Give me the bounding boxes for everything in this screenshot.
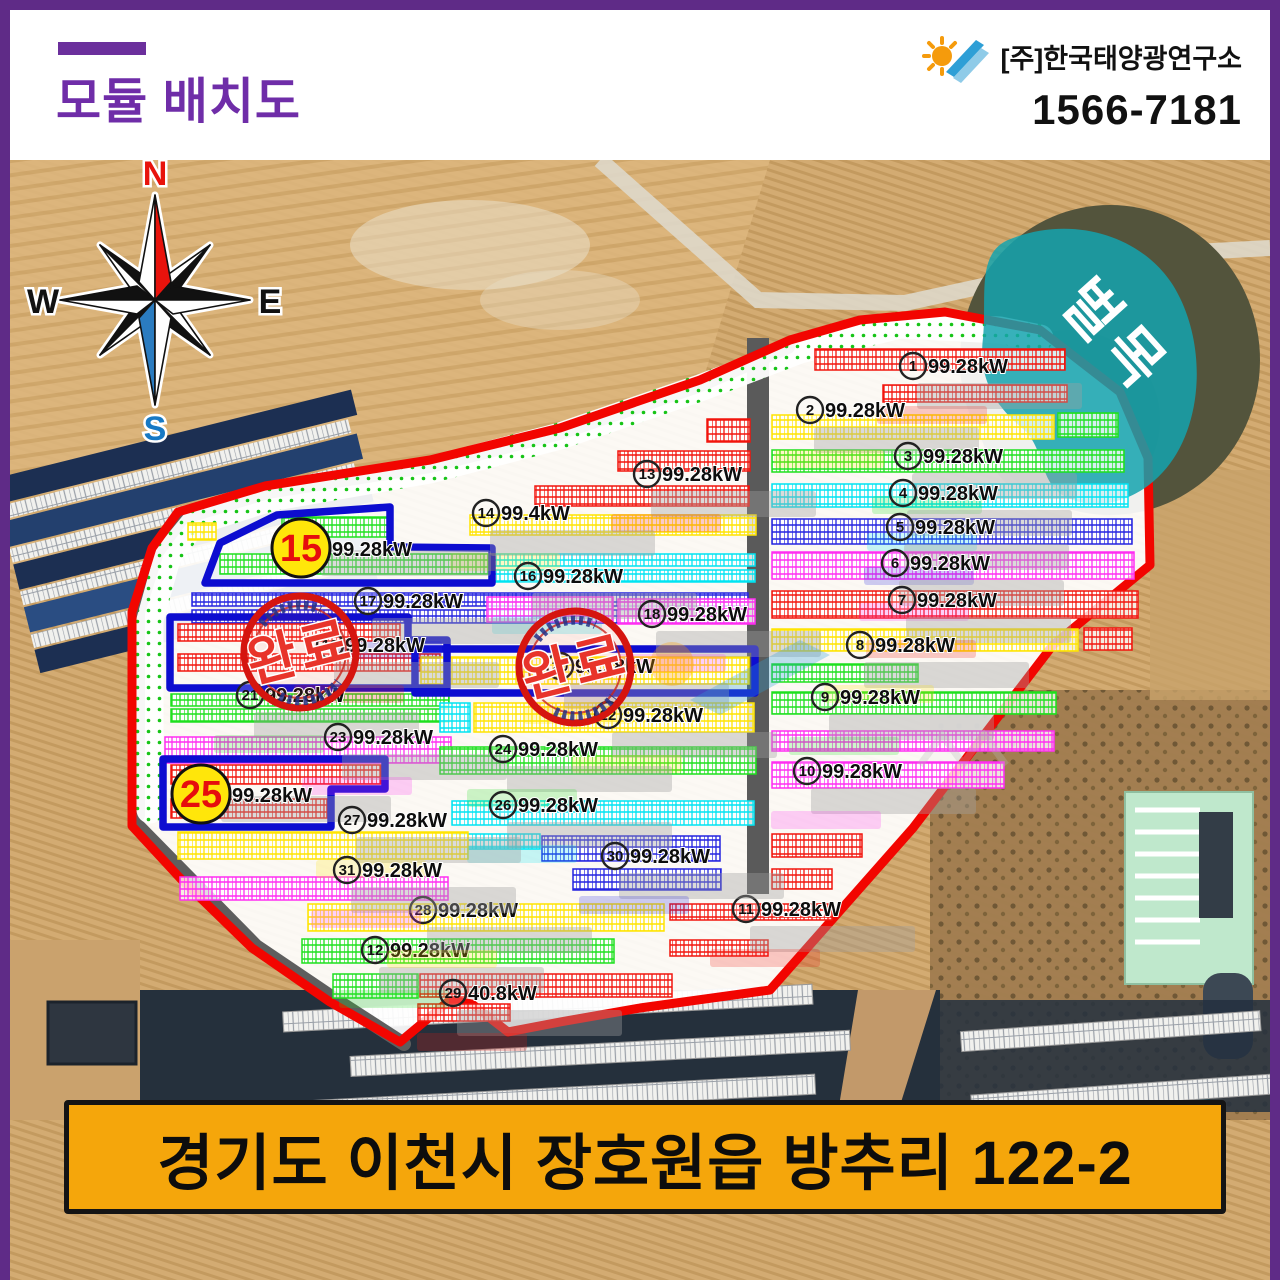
svg-text:99.28kW: 99.28kW	[928, 356, 1008, 378]
svg-text:99.28kW: 99.28kW	[918, 483, 998, 505]
svg-text:9: 9	[821, 689, 829, 706]
svg-text:99.28kW: 99.28kW	[332, 539, 412, 561]
svg-text:99.28kW: 99.28kW	[383, 591, 463, 613]
svg-text:13: 13	[639, 466, 656, 483]
svg-text:12: 12	[367, 942, 384, 959]
phone-number: 1566-7181	[920, 86, 1242, 134]
svg-text:99.28kW: 99.28kW	[822, 761, 902, 783]
svg-text:99.28kW: 99.28kW	[623, 705, 703, 727]
svg-text:99.28kW: 99.28kW	[518, 795, 598, 817]
svg-text:17: 17	[360, 593, 377, 610]
barn-building	[48, 1002, 136, 1064]
svg-text:99.28kW: 99.28kW	[875, 635, 955, 657]
svg-text:99.28kW: 99.28kW	[915, 517, 995, 539]
svg-text:3: 3	[904, 448, 912, 465]
site-address: 경기도 이천시 장호원읍 방추리 122-2	[157, 1113, 1132, 1202]
svg-text:99.28kW: 99.28kW	[367, 810, 447, 832]
svg-text:5: 5	[896, 519, 904, 536]
svg-text:99.28kW: 99.28kW	[825, 400, 905, 422]
frame-border-right	[1270, 0, 1280, 1280]
svg-text:99.28kW: 99.28kW	[362, 860, 442, 882]
svg-text:25: 25	[180, 774, 222, 816]
svg-text:99.28kW: 99.28kW	[353, 727, 433, 749]
title-accent-bar	[58, 42, 146, 55]
svg-text:99.28kW: 99.28kW	[232, 785, 312, 807]
svg-text:11: 11	[738, 901, 754, 918]
svg-text:27: 27	[344, 812, 361, 829]
svg-text:99.4kW: 99.4kW	[501, 503, 570, 525]
svg-text:99.28kW: 99.28kW	[761, 899, 841, 921]
svg-text:10: 10	[799, 763, 816, 780]
compass-w: W	[27, 283, 60, 321]
svg-text:30: 30	[607, 848, 624, 865]
svg-text:26: 26	[495, 797, 512, 814]
svg-text:99.28kW: 99.28kW	[923, 446, 1003, 468]
frame-border-left	[0, 0, 10, 1280]
svg-text:16: 16	[520, 568, 537, 585]
svg-text:7: 7	[898, 592, 906, 609]
svg-text:99.28kW: 99.28kW	[917, 590, 997, 612]
compass-e: E	[259, 283, 282, 321]
svg-text:99.28kW: 99.28kW	[543, 566, 623, 588]
svg-text:31: 31	[339, 862, 356, 879]
compass-s: S	[144, 410, 167, 448]
brand-block: [주]한국태양광연구소 1566-7181	[920, 28, 1242, 134]
svg-text:23: 23	[330, 729, 347, 746]
svg-text:99.28kW: 99.28kW	[518, 739, 598, 761]
module-layout-page: 모듈 배치도 [	[0, 0, 1280, 1280]
svg-text:14: 14	[478, 505, 495, 522]
svg-text:24: 24	[495, 741, 512, 758]
svg-text:99.28kW: 99.28kW	[630, 846, 710, 868]
svg-text:2: 2	[806, 402, 814, 419]
header: 모듈 배치도 [	[10, 10, 1270, 160]
svg-text:4: 4	[899, 485, 908, 502]
address-banner: 경기도 이천시 장호원읍 방추리 122-2	[64, 1100, 1226, 1214]
svg-text:40.8kW: 40.8kW	[468, 983, 537, 1005]
svg-text:99.28kW: 99.28kW	[662, 464, 742, 486]
svg-text:15: 15	[280, 528, 322, 570]
frame-border-top	[0, 0, 1280, 10]
svg-text:99.28kW: 99.28kW	[667, 604, 747, 626]
compass-n: N	[143, 160, 168, 193]
svg-text:99.28kW: 99.28kW	[840, 687, 920, 709]
svg-text:29: 29	[445, 985, 462, 1002]
company-name: [주]한국태양광연구소	[1000, 37, 1242, 76]
svg-text:99.28kW: 99.28kW	[910, 553, 990, 575]
svg-text:18: 18	[644, 606, 661, 623]
page-title: 모듈 배치도	[56, 62, 301, 133]
company-logo	[920, 28, 994, 84]
svg-text:6: 6	[891, 555, 899, 572]
svg-text:8: 8	[856, 637, 864, 654]
svg-text:1: 1	[909, 358, 917, 375]
